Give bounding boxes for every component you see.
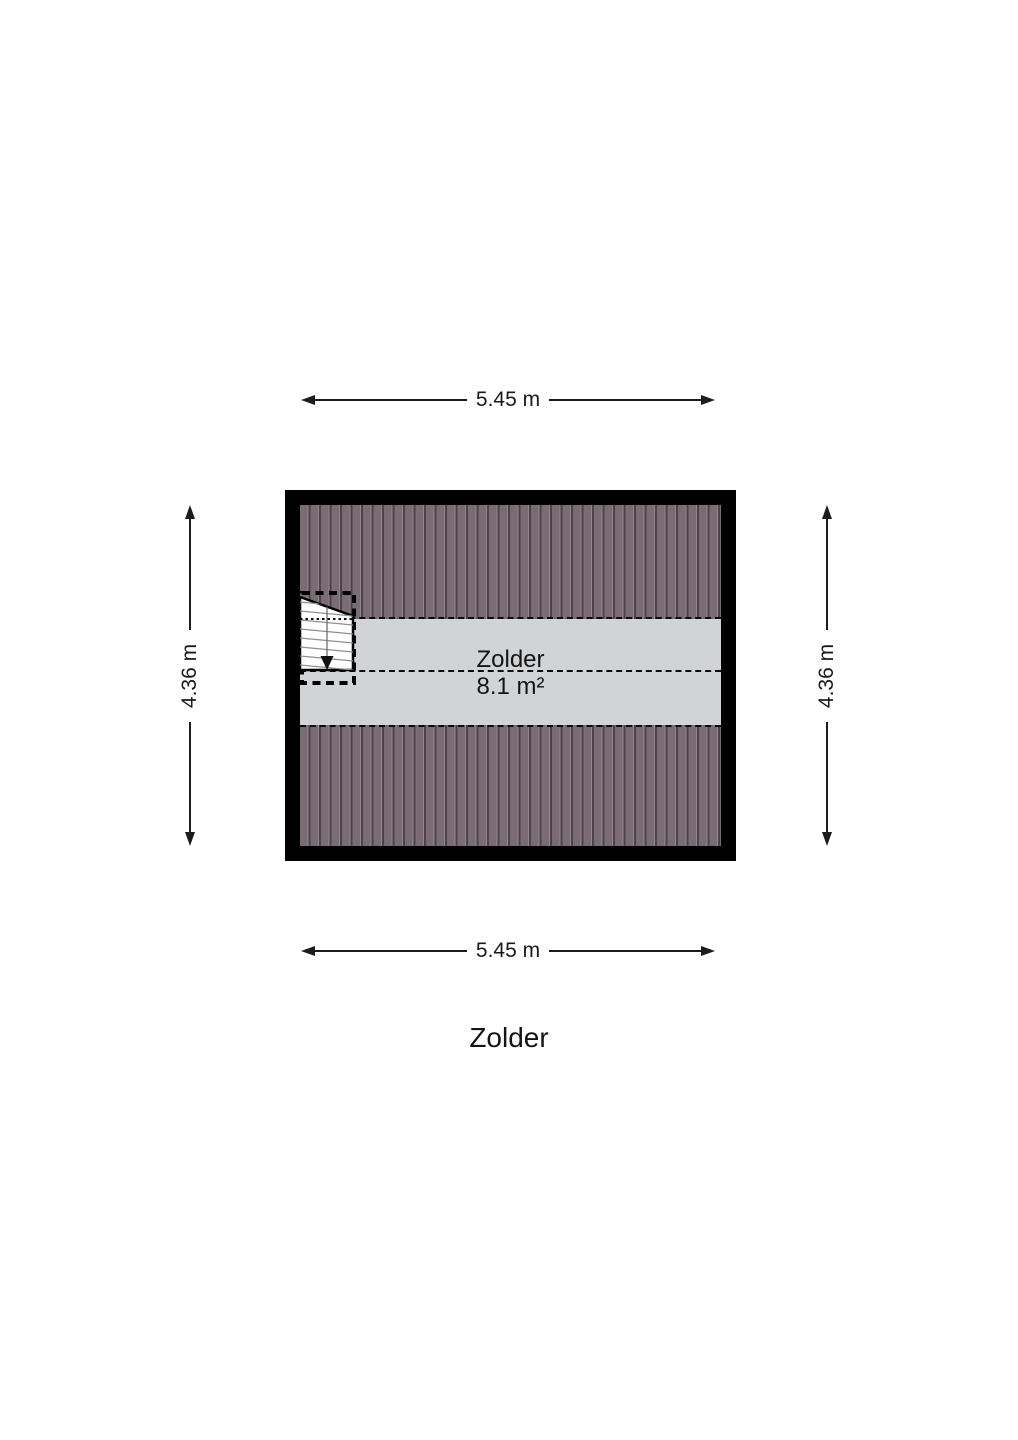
arrowhead-left-icon [301, 946, 315, 956]
dimension-right-label: 4.36 m [816, 643, 838, 707]
dimension-top-label: 5.45 m [467, 389, 549, 411]
dimension-top: 5.45 m [301, 389, 715, 411]
arrowhead-right-icon [701, 395, 715, 405]
floorplan-page: 5.45 m 4.36 m 4.36 m Zolder 8.1 m² [0, 0, 1018, 1440]
dimension-right-label-wrap: 4.36 m [816, 630, 838, 722]
dimension-line [826, 722, 828, 833]
arrowhead-up-icon [185, 505, 195, 519]
dimension-line [189, 722, 191, 833]
dimension-bottom: 5.45 m [301, 940, 715, 962]
dimension-left: 4.36 m [179, 505, 201, 846]
arrowhead-right-icon [701, 946, 715, 956]
dimension-line [315, 399, 467, 401]
dimension-line [549, 950, 701, 952]
dimension-line [315, 950, 467, 952]
dimension-line [189, 519, 191, 630]
arrowhead-down-icon [822, 832, 832, 846]
arrowhead-down-icon [185, 832, 195, 846]
floor-title: Zolder [0, 1022, 1018, 1054]
arrowhead-left-icon [301, 395, 315, 405]
dimension-right: 4.36 m [816, 505, 838, 846]
floorplan-walls: Zolder 8.1 m² [285, 490, 736, 861]
dimension-left-label-wrap: 4.36 m [179, 630, 201, 722]
dimension-line [826, 519, 828, 630]
dimension-line [549, 399, 701, 401]
dimension-bottom-label: 5.45 m [467, 940, 549, 962]
arrowhead-up-icon [822, 505, 832, 519]
staircase [285, 490, 736, 861]
dimension-left-label: 4.36 m [179, 643, 201, 707]
